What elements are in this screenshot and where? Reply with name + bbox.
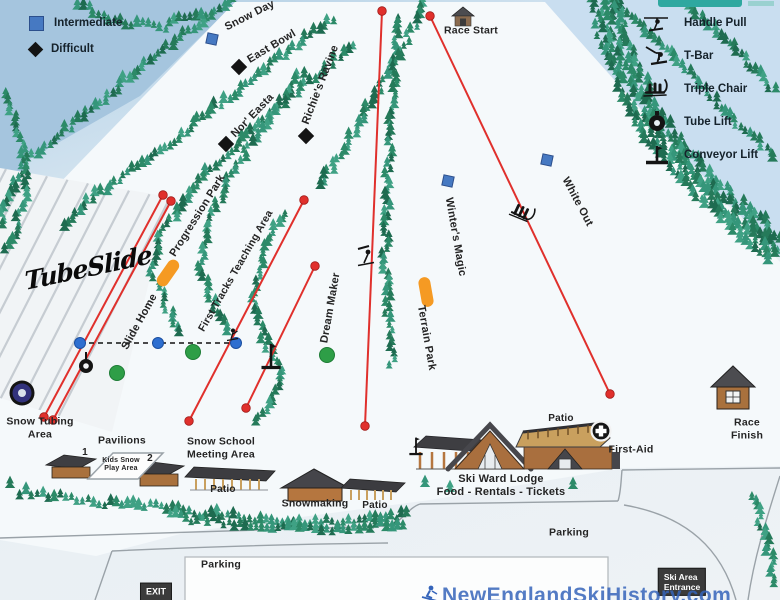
- legend-row-intermediate: Intermediate: [24, 10, 122, 36]
- legend-row-conveyor-lift: Conveyor Lift: [640, 138, 758, 171]
- label-pavilion-2: 2: [147, 453, 153, 465]
- black-diamond-icon: [28, 41, 44, 57]
- skier-icon: [420, 584, 440, 600]
- label-pavilions: Pavilions: [98, 435, 146, 448]
- label-parking-left: Parking: [201, 559, 241, 572]
- blue-square-icon: [29, 16, 44, 31]
- label-snow-school: Snow School Meeting Area: [187, 435, 255, 460]
- legend-row-tube-lift: Tube Lift: [640, 105, 758, 138]
- tube-lift-label: Tube Lift: [684, 116, 732, 128]
- label-first-aid: First-Aid: [609, 444, 654, 457]
- conveyor-lift-icon: [640, 142, 674, 168]
- lift-terminal-dot: [426, 12, 435, 21]
- lift-terminal-dot: [242, 404, 251, 413]
- handle-pull-label: Handle Pull: [684, 17, 747, 29]
- lift-terminal-dot: [361, 422, 370, 431]
- intermediate-label: Intermediate: [54, 17, 122, 29]
- exit-sign: EXIT: [140, 583, 172, 600]
- conveyor-lift-label: Conveyor Lift: [684, 149, 758, 161]
- lift-terminal-dot: [311, 262, 320, 271]
- label-patio-lodge: Patio: [548, 413, 573, 425]
- triple-chair-icon: [640, 76, 674, 102]
- carpet-station-dot: [75, 338, 86, 349]
- difficulty-legend: Intermediate Difficult: [24, 10, 122, 62]
- t-bar-label: T-Bar: [684, 50, 713, 62]
- difficult-label: Difficult: [51, 43, 94, 55]
- triple-chair-label: Triple Chair: [684, 83, 747, 95]
- legend-row-t-bar: T-Bar: [640, 39, 758, 72]
- legend-row-handle-pull: Handle Pull: [640, 6, 758, 39]
- tube-lift-icon: [640, 109, 674, 135]
- label-patio-a: Patio: [210, 484, 235, 496]
- legend-row-triple-chair: Triple Chair: [640, 72, 758, 105]
- watermark: NewEnglandSkiHistory.com: [420, 584, 731, 600]
- lift-terminal-dot: [167, 197, 176, 206]
- beginner-marker: [186, 345, 201, 360]
- label-snow-tubing-area: Snow Tubing Area: [6, 415, 73, 440]
- lift-legend: Handle Pull T-Bar: [640, 6, 758, 171]
- label-race-start: Race Start: [444, 25, 498, 38]
- lift-terminal-dot: [300, 196, 309, 205]
- first-aid-marker: [592, 422, 611, 441]
- handle-pull-icon: [640, 10, 674, 36]
- intermediate-marker: [541, 154, 553, 166]
- lift-terminal-dot: [378, 7, 387, 16]
- label-snowmaking: Snowmaking: [282, 498, 349, 511]
- label-kids-play-area: Kids Snow Play Area: [102, 457, 140, 473]
- label-parking-right: Parking: [549, 527, 589, 540]
- intermediate-marker: [206, 33, 218, 45]
- lift-terminal-dot: [606, 390, 615, 399]
- beginner-marker: [320, 348, 335, 363]
- label-race-finish: Race Finish: [731, 416, 763, 441]
- lift-terminal-dot: [185, 417, 194, 426]
- label-pavilion-1: 1: [82, 447, 88, 459]
- trail-map: Intermediate Difficult Handle Pull: [0, 0, 780, 600]
- watermark-text: NewEnglandSkiHistory.com: [442, 584, 731, 600]
- label-ski-ward-lodge: Ski Ward Lodge Food - Rentals - Tickets: [437, 473, 566, 499]
- beginner-marker: [110, 366, 125, 381]
- label-patio-b: Patio: [362, 500, 387, 512]
- intermediate-marker: [442, 175, 454, 187]
- lift-terminal-dot: [159, 191, 168, 200]
- legend-row-difficult: Difficult: [24, 36, 122, 62]
- carpet-station-dot: [153, 338, 164, 349]
- t-bar-icon: [640, 43, 674, 69]
